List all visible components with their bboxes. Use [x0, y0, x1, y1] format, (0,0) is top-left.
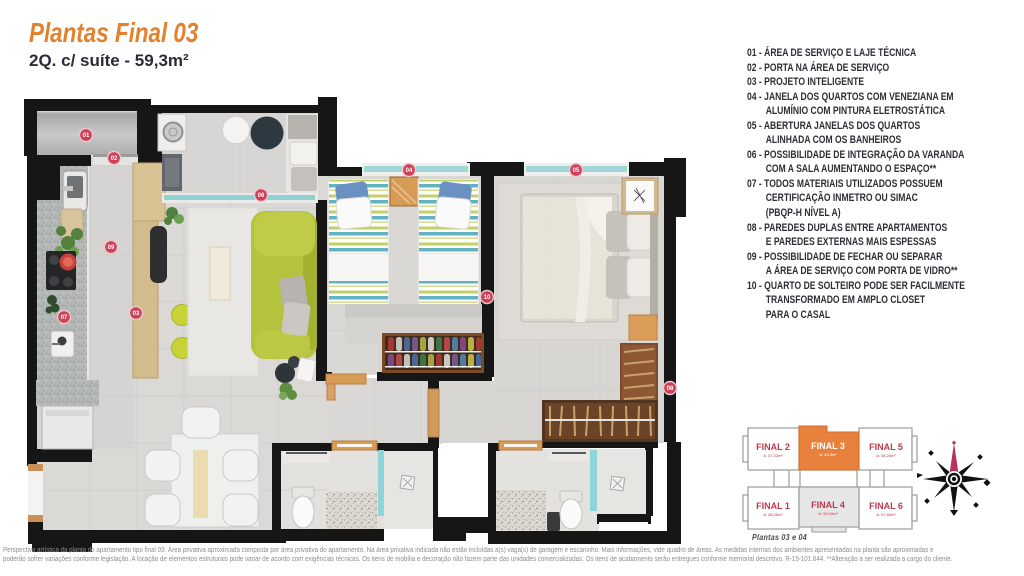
svg-text:A: 59,34m²: A: 59,34m² — [818, 511, 838, 516]
svg-text:FINAL 1: FINAL 1 — [756, 501, 790, 511]
svg-text:A: 58,26m²: A: 58,26m² — [876, 453, 896, 458]
svg-text:01: 01 — [83, 133, 90, 139]
svg-text:FINAL 3: FINAL 3 — [811, 441, 845, 451]
svg-text:04: 04 — [406, 168, 413, 174]
svg-text:A: 59,3m²: A: 59,3m² — [819, 452, 837, 457]
svg-text:10: 10 — [484, 295, 491, 301]
svg-text:A: 57,02m²: A: 57,02m² — [763, 453, 783, 458]
svg-text:FINAL 5: FINAL 5 — [869, 442, 903, 452]
svg-text:FINAL 4: FINAL 4 — [811, 500, 845, 510]
svg-text:06: 06 — [258, 193, 265, 199]
svg-text:A: 57,80m²: A: 57,80m² — [876, 512, 896, 517]
svg-text:A: 58,26m²: A: 58,26m² — [763, 512, 783, 517]
svg-text:FINAL 2: FINAL 2 — [756, 442, 790, 452]
svg-text:05: 05 — [573, 168, 580, 174]
svg-text:02: 02 — [111, 156, 118, 162]
svg-text:07: 07 — [61, 315, 68, 321]
svg-text:08: 08 — [667, 386, 674, 392]
svg-text:FINAL 6: FINAL 6 — [869, 501, 903, 511]
svg-text:03: 03 — [133, 311, 140, 317]
svg-text:09: 09 — [108, 245, 115, 251]
